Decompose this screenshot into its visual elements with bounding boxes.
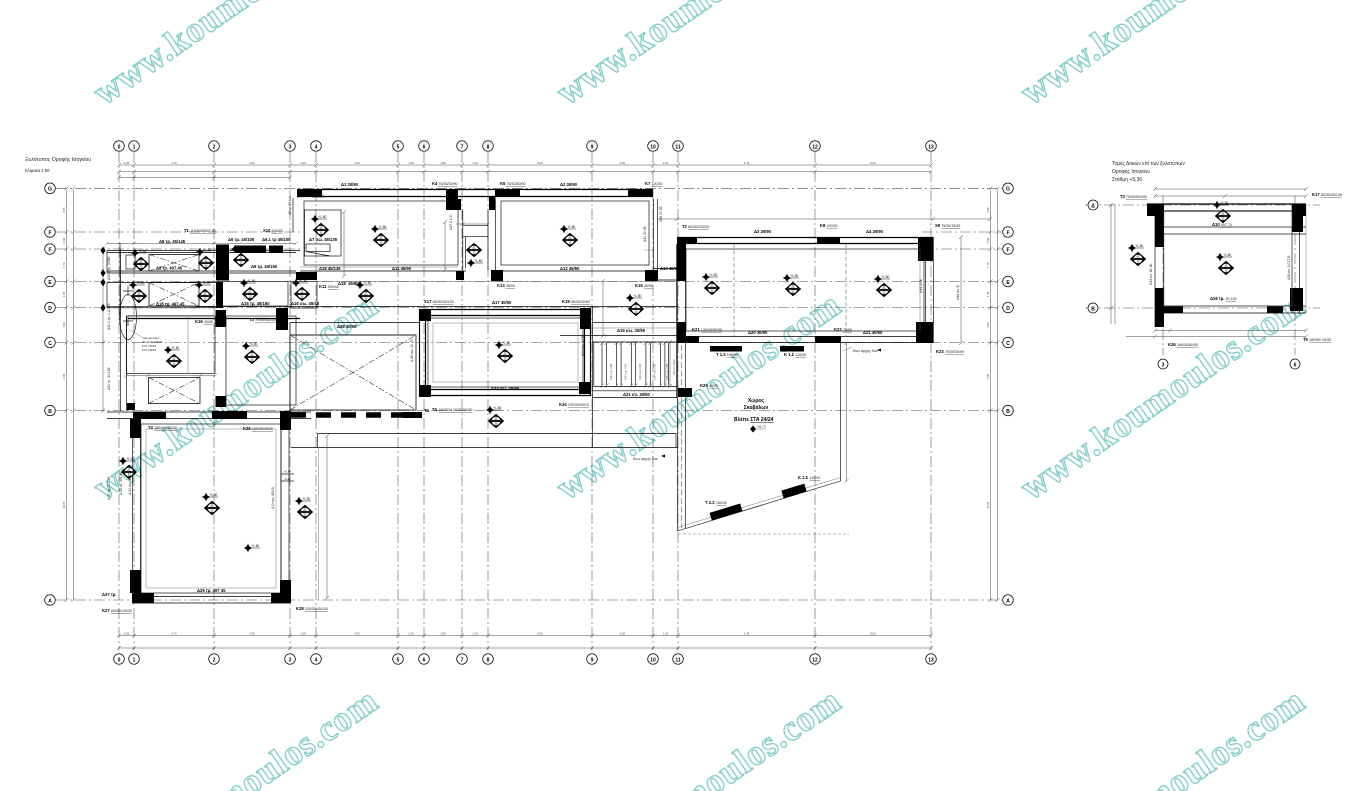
svg-text:Δ18 45/135: Δ18 45/135 — [319, 266, 341, 271]
svg-text:1.25: 1.25 — [408, 631, 414, 635]
svg-text:D: D — [48, 306, 52, 312]
svg-text:F: F — [48, 247, 51, 253]
svg-text:Δ38 30/90: Δ38 30/90 — [337, 324, 357, 329]
svg-text:Δ30.2 τρ. 30/45: Δ30.2 τρ. 30/45 — [107, 256, 111, 280]
svg-text:Δ30 τρ. 30.145: Δ30 τρ. 30.145 — [107, 367, 111, 390]
svg-text:Δ.36 σω. 30 70: Δ.36 σω. 30 70 — [410, 339, 414, 362]
svg-text:D: D — [1006, 306, 1010, 312]
svg-text:Δ37 2 100: Δ37 2 100 — [449, 214, 453, 230]
svg-text:Δ18΄ 45/80: Δ18΄ 45/80 — [338, 281, 359, 286]
svg-text:5: 5 — [397, 657, 400, 663]
svg-text:1.20: 1.20 — [300, 631, 306, 635]
svg-text:Δ10 007 70: Δ10 007 70 — [1212, 222, 1232, 227]
svg-text:Δ40.4 σω.1000: Δ40.4 σω.1000 — [639, 363, 642, 380]
svg-text:Δ34 σν. 45 1Ε: Δ34 σν. 45 1Ε — [1149, 263, 1153, 285]
svg-text:K28 100/30/40/100: K28 100/30/40/100 — [296, 606, 328, 611]
svg-text:0: 0 — [118, 144, 121, 150]
svg-text:5.05: 5.05 — [537, 161, 543, 165]
svg-text:1.80: 1.80 — [440, 161, 446, 165]
svg-text:K16 30/85: K16 30/85 — [195, 319, 213, 324]
svg-text:Δ9 τρ. 45/160: Δ9 τρ. 45/160 — [251, 264, 278, 269]
svg-text:Δ2 30/90: Δ2 30/90 — [560, 182, 578, 187]
svg-text:F: F — [48, 230, 51, 236]
svg-text:10: 10 — [650, 657, 656, 663]
svg-text:A: A — [48, 598, 52, 604]
svg-text:Δ19 σω. 30/80: Δ19 σω. 30/80 — [617, 328, 646, 333]
svg-text:5.63: 5.63 — [870, 161, 876, 165]
svg-text:3: 3 — [289, 144, 292, 150]
svg-text:1: 1 — [133, 144, 136, 150]
svg-text:X9 75/30/75/30: X9 75/30/75/30 — [935, 223, 960, 228]
svg-text:1.20: 1.20 — [472, 631, 478, 635]
svg-text:1.45: 1.45 — [986, 291, 990, 297]
svg-text:3.80: 3.80 — [986, 373, 990, 379]
svg-text:0.45: 0.45 — [124, 161, 130, 165]
svg-text:9: 9 — [591, 144, 594, 150]
svg-text:1.13: 1.13 — [663, 631, 669, 635]
svg-text:Δ18 τρ. 497.45: Δ18 τρ. 497.45 — [156, 302, 185, 307]
svg-text:Δ41 30 95: Δ41 30 95 — [643, 226, 647, 242]
svg-text:3: 3 — [1162, 362, 1165, 368]
svg-text:K 1.Σ 110/30: K 1.Σ 110/30 — [784, 352, 806, 357]
svg-text:T4 180/30/180/30: T4 180/30/180/30 — [148, 425, 177, 430]
svg-text:K13 45/90: K13 45/90 — [497, 283, 515, 288]
svg-text:Β: Β — [1091, 306, 1095, 312]
svg-text:K8 190/30: K8 190/30 — [820, 223, 838, 228]
svg-text:Βλέπε ΣΤΑ 24/24: Βλέπε ΣΤΑ 24/24 — [734, 417, 774, 423]
svg-text:Δ21 30/90: Δ21 30/90 — [863, 330, 883, 335]
svg-text:Δ17 30/90: Δ17 30/90 — [492, 300, 512, 305]
svg-text:2.35: 2.35 — [62, 207, 66, 213]
svg-text:T1 110/500/50/7 80: T1 110/500/50/7 80 — [184, 228, 216, 233]
svg-text:Δ8 τρ. 45/145: Δ8 τρ. 45/145 — [159, 239, 186, 244]
svg-text:K4 75/30/30/90: K4 75/30/30/90 — [432, 181, 458, 186]
svg-text:Δ1 30/90: Δ1 30/90 — [341, 182, 359, 187]
svg-text:2: 2 — [213, 144, 216, 150]
svg-text:0.90: 0.90 — [986, 237, 990, 243]
svg-text:1.70: 1.70 — [62, 262, 66, 268]
svg-text:1.90: 1.90 — [986, 322, 990, 328]
svg-text:Δ5 τρ 45 1.0: Δ5 τρ 45 1.0 — [288, 196, 292, 215]
svg-text:Χώρος: Χώρος — [748, 398, 765, 404]
svg-text:K19 55/30/30/60: K19 55/30/30/60 — [562, 299, 590, 304]
svg-text:0: 0 — [118, 657, 121, 663]
svg-text:G: G — [48, 187, 52, 193]
svg-text:Ξυλότυπος Οροφής Ισογείου: Ξυλότυπος Οροφής Ισογείου — [25, 156, 91, 163]
svg-text:9: 9 — [591, 657, 594, 663]
svg-text:Δ.Ω σω. 45/15: Δ.Ω σω. 45/15 — [271, 487, 275, 509]
svg-text:13: 13 — [928, 657, 934, 663]
svg-text:13: 13 — [928, 144, 934, 150]
svg-text:Δ28 σν. 3.017 Ε: Δ28 σν. 3.017 Ε — [1287, 255, 1291, 280]
svg-text:10.35: 10.35 — [62, 501, 66, 508]
svg-text:1.90: 1.90 — [62, 322, 66, 328]
svg-text:7: 7 — [461, 144, 464, 150]
svg-text:Δ6.1 τρ 45/105: Δ6.1 τρ 45/105 — [262, 237, 291, 242]
svg-text:Δ36 30 95: Δ36 30 95 — [659, 206, 663, 222]
svg-text:1.70: 1.70 — [986, 262, 990, 268]
svg-text:11: 11 — [675, 657, 681, 663]
svg-text:Σκυβάλων: Σκυβάλων — [744, 405, 769, 411]
svg-text:Δ13 45/90: Δ13 45/90 — [660, 266, 680, 271]
svg-text:X10 100/45: X10 100/45 — [263, 228, 283, 233]
svg-text:Δ42 σν. 1000: Δ42 σν. 1000 — [672, 359, 676, 375]
svg-text:Δ: Δ — [1091, 203, 1095, 209]
svg-text:1: 1 — [133, 657, 136, 663]
svg-text:B: B — [48, 409, 52, 415]
svg-text:C: C — [1006, 341, 1010, 347]
svg-text:4: 4 — [315, 657, 318, 663]
svg-text:5.05: 5.05 — [537, 631, 543, 635]
svg-text:Δ4 30/90: Δ4 30/90 — [866, 229, 884, 234]
svg-text:Δ40.4 σω.1000: Δ40.4 σω.1000 — [624, 363, 627, 380]
svg-text:Δ44 σν. Ε: Δ44 σν. Ε — [956, 284, 960, 300]
svg-text:T5 180/50/ 25/30: T5 180/50/ 25/30 — [1303, 337, 1331, 342]
svg-text:1.13: 1.13 — [663, 161, 669, 165]
svg-text:Δ11 45/90: Δ11 45/90 — [392, 266, 412, 271]
svg-text:Δ12 45/90: Δ12 45/90 — [560, 266, 580, 271]
svg-text:4.70: 4.70 — [171, 161, 177, 165]
svg-text:+5.77: +5.77 — [757, 425, 766, 429]
svg-text:K2 100/30: K2 100/30 — [306, 192, 324, 197]
svg-text:8: 8 — [487, 144, 490, 150]
svg-text:4.02: 4.02 — [354, 161, 360, 165]
svg-text:X17 55/30/30/135: X17 55/30/30/135 — [424, 299, 454, 304]
svg-text:4.02: 4.02 — [354, 631, 360, 635]
svg-text:0.45: 0.45 — [124, 631, 130, 635]
svg-text:K22 70/85: K22 70/85 — [834, 327, 852, 332]
svg-text:2: 2 — [213, 657, 216, 663]
svg-text:Δ7 σω. 45/135: Δ7 σω. 45/135 — [309, 237, 338, 242]
svg-text:G: G — [1006, 187, 1010, 193]
svg-text:3.00: 3.00 — [620, 631, 626, 635]
svg-text:K25 40/25: K25 40/25 — [700, 383, 718, 388]
svg-text:Άνω αρχής δοκ.: Άνω αρχής δοκ. — [853, 349, 878, 353]
svg-text:Δ40.4 σω.1000: Δ40.4 σω.1000 — [654, 363, 657, 380]
svg-text:11: 11 — [675, 144, 681, 150]
svg-text:12: 12 — [812, 657, 818, 663]
svg-text:1.80: 1.80 — [440, 631, 446, 635]
svg-text:Οροφής Ισογείου: Οροφής Ισογείου — [1112, 168, 1150, 175]
svg-text:F: F — [1006, 247, 1009, 253]
svg-text:Δ40.4 σω.1000: Δ40.4 σω.1000 — [610, 363, 613, 380]
svg-text:0.90: 0.90 — [62, 237, 66, 243]
svg-text:Δ40.4 σω.1000: Δ40.4 σω.1000 — [666, 363, 669, 380]
svg-text:Δ.Ν σω. 30 Ε: Δ.Ν σω. 30 Ε — [581, 335, 585, 356]
svg-text:Δ.31 σω. 450.1: Δ.31 σω. 450.1 — [128, 472, 132, 495]
svg-text:Στάθμη +5,30: Στάθμη +5,30 — [1112, 176, 1142, 183]
svg-text:12: 12 — [812, 144, 818, 150]
svg-text:6.78: 6.78 — [744, 631, 750, 635]
svg-text:10: 10 — [650, 144, 656, 150]
svg-text:Δ16 σω. 45/15: Δ16 σω. 45/15 — [291, 301, 320, 306]
svg-text:6: 6 — [423, 657, 426, 663]
svg-text:-0.45: -0.45 — [284, 477, 291, 481]
svg-text:7: 7 — [461, 657, 464, 663]
svg-text:T2 80/30/230/30: T2 80/30/230/30 — [682, 224, 709, 229]
svg-text:4.70: 4.70 — [171, 631, 177, 635]
svg-text:K21 130/30/50/30: K21 130/30/50/30 — [692, 327, 722, 332]
svg-text:4: 4 — [315, 144, 318, 150]
svg-text:1.20: 1.20 — [300, 161, 306, 165]
svg-text:T 1.Σ 190/30: T 1.Σ 190/30 — [716, 352, 738, 357]
svg-text:5: 5 — [397, 144, 400, 150]
svg-text:Δ.30 τρ. 307 45: Δ.30 τρ. 307 45 — [107, 476, 111, 500]
svg-text:Δ15 τρ. 45/160: Δ15 τρ. 45/160 — [241, 301, 270, 306]
svg-text:ΤΔ 180/30/1.00/30/90/30: ΤΔ 180/30/1.00/30/90/30 — [432, 407, 472, 412]
svg-text:F: F — [1006, 230, 1009, 236]
svg-text:Δ3 30/90: Δ3 30/90 — [754, 229, 772, 234]
svg-text:T3 75/45/45/200: T3 75/45/45/200 — [249, 317, 276, 322]
svg-text:Δ6 τρ. 45/105: Δ6 τρ. 45/105 — [228, 237, 255, 242]
svg-text:1.45: 1.45 — [62, 291, 66, 297]
svg-text:+0.00: +0.00 — [284, 470, 292, 474]
svg-text:K23 75/30/30/90: K23 75/30/30/90 — [936, 349, 964, 354]
svg-text:K 2.Σ 110/30: K 2.Σ 110/30 — [798, 475, 820, 480]
svg-text:5.63: 5.63 — [870, 631, 876, 635]
svg-text:Κλίμακα 1:50: Κλίμακα 1:50 — [25, 168, 50, 173]
svg-text:6.78: 6.78 — [744, 161, 750, 165]
svg-text:K7 120/30: K7 120/30 — [645, 181, 663, 186]
svg-text:Δ.35 τρ. 351 45: Δ.35 τρ. 351 45 — [119, 471, 123, 495]
svg-text:6: 6 — [423, 144, 426, 150]
svg-text:K17 80/30/30/135: K17 80/30/30/135 — [1312, 192, 1342, 197]
svg-text:2.35: 2.35 — [986, 207, 990, 213]
svg-text:Δ8 τρ. 497.45: Δ8 τρ. 497.45 — [156, 266, 183, 271]
svg-text:3.80: 3.80 — [62, 373, 66, 379]
svg-text:Δ25 τρ. 497 45: Δ25 τρ. 497 45 — [197, 588, 226, 593]
svg-text:Δ37 τρ.: Δ37 τρ. — [102, 592, 116, 597]
svg-text:4.30: 4.30 — [249, 161, 255, 165]
svg-text:Δ21 σν. 30/90: Δ21 σν. 30/90 — [623, 392, 651, 397]
svg-text:K27 60/30/140/30: K27 60/30/140/30 — [102, 608, 132, 613]
svg-text:K26 160/30/60/50: K26 160/30/60/50 — [1168, 342, 1198, 347]
svg-text:Δ23 σω. 30/80: Δ23 σω. 30/80 — [491, 386, 520, 391]
svg-text:Δ30.1 τρ. 1.10 Σ3: Δ30.1 τρ. 1.10 Σ3 — [107, 303, 111, 330]
svg-text:Σ7Α 2Ω/24: Σ7Α 2Ω/24 — [142, 348, 157, 352]
svg-text:T3 75/50/50/200: T3 75/50/50/200 — [1120, 194, 1147, 199]
svg-text:K26 160/30/40/30: K26 160/30/40/30 — [243, 426, 273, 431]
svg-text:C: C — [48, 341, 52, 347]
svg-text:Δ26 τμ. 30 100: Δ26 τμ. 30 100 — [1210, 296, 1237, 301]
svg-text:T 2.Σ 180/30: T 2.Σ 180/30 — [705, 500, 727, 505]
svg-text:A: A — [1006, 598, 1010, 604]
svg-text:3: 3 — [289, 657, 292, 663]
svg-text:K5 75/30/30/90: K5 75/30/30/90 — [500, 181, 526, 186]
svg-text:ΤΔ: ΤΔ — [424, 408, 429, 413]
svg-text:Άνω αρχής δοκ.: Άνω αρχής δοκ. — [633, 457, 658, 461]
svg-text:Δ44 30 Ε: Δ44 30 Ε — [919, 278, 923, 293]
svg-text:K15 45/90: K15 45/90 — [635, 283, 653, 288]
svg-text:Δ20 30/90: Δ20 30/90 — [748, 330, 768, 335]
svg-text:1.20: 1.20 — [472, 161, 478, 165]
svg-text:8: 8 — [487, 657, 490, 663]
svg-text:K11 300/45: K11 300/45 — [319, 284, 339, 289]
svg-text:1.25: 1.25 — [408, 161, 414, 165]
svg-text:K34 100/30/90/15: K34 100/30/90/15 — [559, 402, 589, 407]
svg-text:3.00: 3.00 — [620, 161, 626, 165]
svg-text:B: B — [1006, 409, 1010, 415]
svg-text:10.35: 10.35 — [986, 501, 990, 508]
svg-text:4.30: 4.30 — [249, 631, 255, 635]
svg-text:6: 6 — [1294, 362, 1297, 368]
svg-text:Τομές Δοκών επί των ξυλοτύπων: Τομές Δοκών επί των ξυλοτύπων — [1112, 160, 1185, 167]
